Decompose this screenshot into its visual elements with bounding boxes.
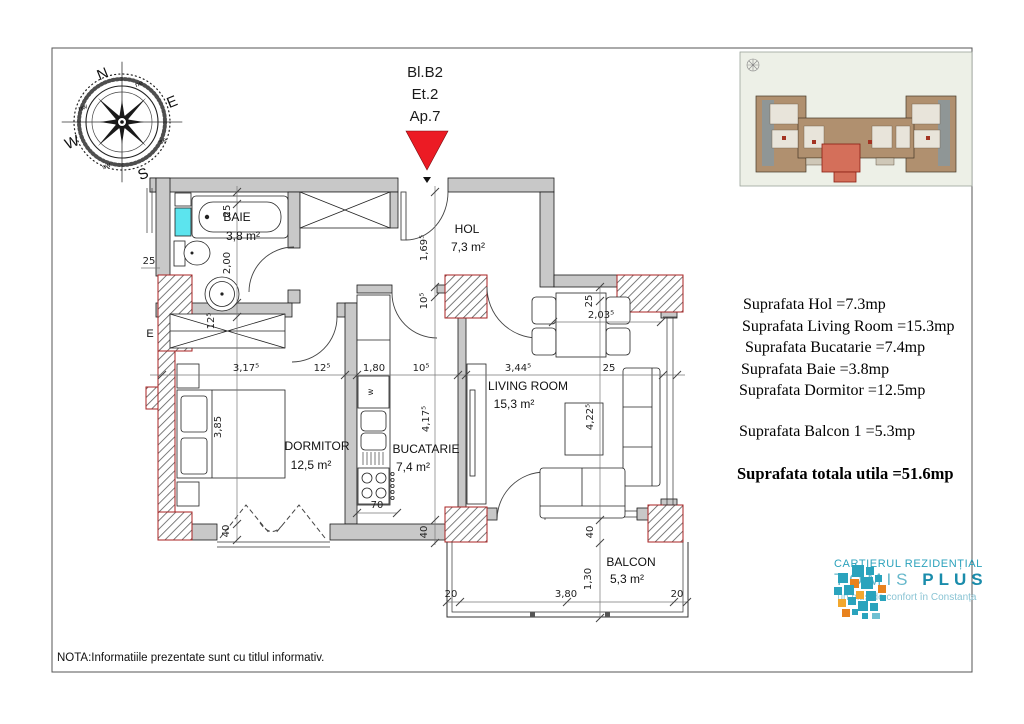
dim-label: 10⁵: [413, 363, 430, 374]
dim-label: 2,03⁵: [588, 310, 614, 321]
kitchen-counter: [357, 295, 394, 505]
thumbnail-compass-icon: [747, 59, 759, 71]
floor-label: Et.2: [375, 84, 475, 106]
baie-exterior-window: [147, 188, 152, 233]
balcony-door-arc: [497, 472, 545, 520]
apartment-label: Ap.7: [375, 106, 475, 128]
dim-label: 2,00: [222, 252, 233, 274]
chair: [606, 328, 630, 355]
dim-label: 4,17⁵: [421, 406, 432, 432]
electric-panel-label: E: [146, 328, 153, 340]
hall-closet: [300, 192, 390, 228]
area-total-line: Suprafata totala utila =51.6mp: [737, 464, 987, 484]
compass-e-label: E: [164, 92, 180, 112]
logo-mosaic-icon: [834, 565, 888, 619]
dim-label: 12⁵: [314, 363, 331, 374]
bed: [177, 364, 285, 506]
balcony-railing: [447, 542, 688, 617]
dim-label: 3,44⁵: [505, 363, 531, 374]
entrance-door-leaf: [401, 192, 406, 240]
dim-label: 3,80: [555, 589, 577, 600]
dim-label: 70: [371, 500, 384, 511]
wardrobe: [170, 314, 285, 348]
room-label-hol: HOL: [455, 222, 480, 236]
area-line-balcon: Suprafata Balcon 1 =5.3mp: [737, 421, 987, 442]
toilet: [174, 241, 210, 266]
room-area-balcon: 5,3 m²: [610, 572, 644, 586]
chair: [532, 328, 556, 355]
dim-label: 25: [603, 363, 616, 374]
site-plan-thumbnail: [740, 52, 972, 186]
compass-ne-label: ne: [134, 80, 144, 89]
dormitor-french-door: [220, 505, 325, 538]
dim-label: 25: [143, 256, 156, 267]
apartment-marker-triangle-icon: [406, 131, 448, 170]
room-area-baie: 3,8 m²: [226, 229, 260, 243]
tv-sideboard: [467, 364, 486, 504]
chair: [532, 297, 556, 324]
dim-label: 40: [221, 525, 232, 538]
dim-label: 1,80: [363, 363, 385, 374]
room-label-bucatarie: BUCATARIE: [393, 442, 460, 456]
entrance-arrow-icon: [423, 177, 431, 183]
dim-label: 3,17⁵: [233, 363, 259, 374]
kitchen-door-arc: [392, 293, 437, 338]
area-line-hol: Suprafata Hol =7.3mp: [737, 294, 987, 316]
washing-machine-label: w: [365, 388, 375, 396]
dim-label: 3,85: [213, 416, 224, 438]
room-label-balcon: BALCON: [606, 555, 655, 569]
entrance-door-arc: [406, 192, 448, 240]
area-line-dormitor: Suprafata Dormitor =12.5mp: [737, 380, 987, 402]
living-window: [663, 317, 677, 505]
compass-s-label: S: [135, 165, 151, 185]
room-area-dormitor: 12,5 m²: [291, 458, 332, 472]
footer-note: NOTA:Informatiile prezentate sunt cu tit…: [57, 652, 324, 664]
kitchen-sink: [361, 411, 386, 431]
room-area-bucatarie: 7,4 m²: [396, 460, 430, 474]
dim-label: 40: [585, 526, 596, 539]
dim-label: 20: [445, 589, 458, 600]
dim-label: 4,22⁵: [585, 404, 596, 430]
nightstand: [177, 482, 199, 506]
room-area-living: 15,3 m²: [494, 397, 535, 411]
baie-shaft: [175, 193, 191, 206]
room-area-hol: 7,3 m²: [451, 240, 485, 254]
stove: [358, 468, 394, 504]
areas-list: Suprafata Hol =7.3mp Suprafata Living Ro…: [737, 294, 987, 484]
dim-label: 1,69⁵: [419, 235, 430, 261]
coffee-table: [565, 403, 603, 455]
nightstand: [177, 364, 199, 388]
logo-brand-plus: PLUS: [922, 570, 987, 589]
dim-label: 12⁵: [206, 313, 217, 330]
dim-label: 10⁵: [419, 293, 430, 310]
sofa-small: [540, 468, 625, 518]
dim-label: 40: [419, 526, 430, 539]
baie-door-arc: [249, 247, 294, 292]
dim-label: 20: [671, 589, 684, 600]
room-label-baie: BAIE: [223, 210, 250, 224]
living-door-arc: [487, 287, 538, 338]
block-label: Bl.B2: [375, 62, 475, 84]
room-label-dormitor: DORMITOR: [284, 439, 349, 453]
area-line-baie: Suprafata Baie =3.8mp: [737, 359, 987, 381]
dim-label: 25: [584, 295, 595, 308]
dining-set: [532, 293, 630, 357]
baie-window-glass: [175, 208, 191, 236]
dormitor-door-arc: [292, 317, 337, 362]
sofa-large: [623, 368, 660, 486]
area-line-bucatarie: Suprafata Bucatarie =7.4mp: [737, 337, 987, 359]
floorplan-page: N E S W ne se sw nw: [0, 0, 1024, 724]
room-label-living: LIVING ROOM: [488, 379, 568, 393]
brand-logo: CARTIERUL REZIDENȚIAL TOMIS PLUS: [834, 558, 980, 603]
area-line-living: Suprafata Living Room =15.3mp: [737, 316, 987, 338]
title-block: Bl.B2 Et.2 Ap.7: [375, 62, 475, 128]
dim-label: 1,30: [583, 568, 594, 590]
